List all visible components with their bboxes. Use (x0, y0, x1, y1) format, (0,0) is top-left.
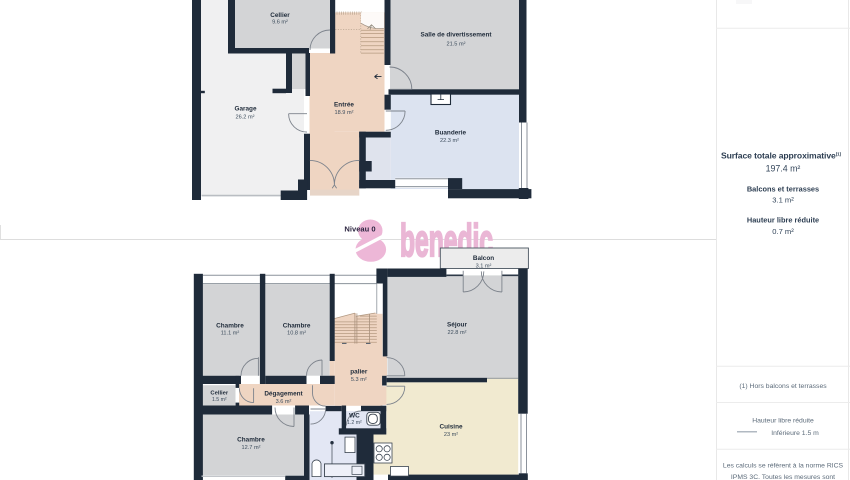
svg-text:Les calculs se réfèrent à la n: Les calculs se réfèrent à la norme RICS (723, 463, 844, 470)
svg-text:Séjour: Séjour (447, 321, 467, 328)
svg-text:WC: WC (349, 413, 360, 420)
svg-text:1.2 m²: 1.2 m² (347, 420, 362, 426)
svg-text:Dégagement: Dégagement (264, 391, 303, 398)
svg-text:3.1 m²: 3.1 m² (772, 196, 794, 205)
svg-text:12.7 m²: 12.7 m² (242, 445, 261, 451)
svg-text:Chambre: Chambre (283, 322, 311, 329)
svg-text:Buanderie: Buanderie (435, 130, 467, 137)
svg-text:23 m²: 23 m² (444, 432, 458, 438)
svg-text:22.3 m²: 22.3 m² (440, 138, 459, 144)
svg-text:IPMS 3C. Toutes les mesures so: IPMS 3C. Toutes les mesures sont (731, 474, 835, 480)
svg-text:0.7 m²: 0.7 m² (772, 227, 794, 236)
svg-text:Balcon: Balcon (473, 255, 494, 262)
svg-text:Garage: Garage (234, 106, 256, 113)
svg-text:21.5 m²: 21.5 m² (447, 42, 466, 48)
svg-text:3.6 m²: 3.6 m² (276, 399, 292, 405)
svg-text:Balcons et terrasses: Balcons et terrasses (747, 185, 819, 194)
svg-text:Salle de divertissement: Salle de divertissement (420, 32, 492, 39)
svg-text:10.8 m²: 10.8 m² (287, 331, 306, 337)
svg-text:3.1 m²: 3.1 m² (476, 263, 492, 269)
svg-text:1.5 m²: 1.5 m² (212, 397, 227, 403)
svg-text:Hauteur libre réduite: Hauteur libre réduite (747, 216, 819, 225)
svg-text:(1) Hors balcons et terrasses: (1) Hors balcons et terrasses (739, 383, 827, 390)
svg-text:palier: palier (350, 368, 368, 375)
svg-text:Cellier: Cellier (270, 12, 290, 19)
svg-text:Surface totale approximative(1: Surface totale approximative(1) (721, 151, 842, 161)
svg-text:5.3 m²: 5.3 m² (351, 377, 367, 383)
svg-text:197.4 m²: 197.4 m² (766, 164, 801, 174)
svg-text:18.9 m²: 18.9 m² (335, 110, 354, 116)
svg-text:26.2 m²: 26.2 m² (236, 115, 255, 121)
svg-text:Inférieure 1.5 m: Inférieure 1.5 m (771, 430, 819, 437)
svg-text:Entrée: Entrée (334, 101, 354, 108)
svg-text:Niveau 0: Niveau 0 (344, 224, 375, 233)
svg-text:Cuisine: Cuisine (439, 423, 463, 430)
svg-text:11.1 m²: 11.1 m² (221, 331, 240, 337)
svg-text:Hauteur libre réduite: Hauteur libre réduite (752, 418, 814, 425)
svg-text:22.8 m²: 22.8 m² (448, 330, 467, 336)
svg-text:9.6 m²: 9.6 m² (272, 20, 288, 26)
svg-text:Chambre: Chambre (216, 322, 244, 329)
svg-text:Chambre: Chambre (237, 436, 265, 443)
svg-text:Cellier: Cellier (210, 391, 228, 397)
